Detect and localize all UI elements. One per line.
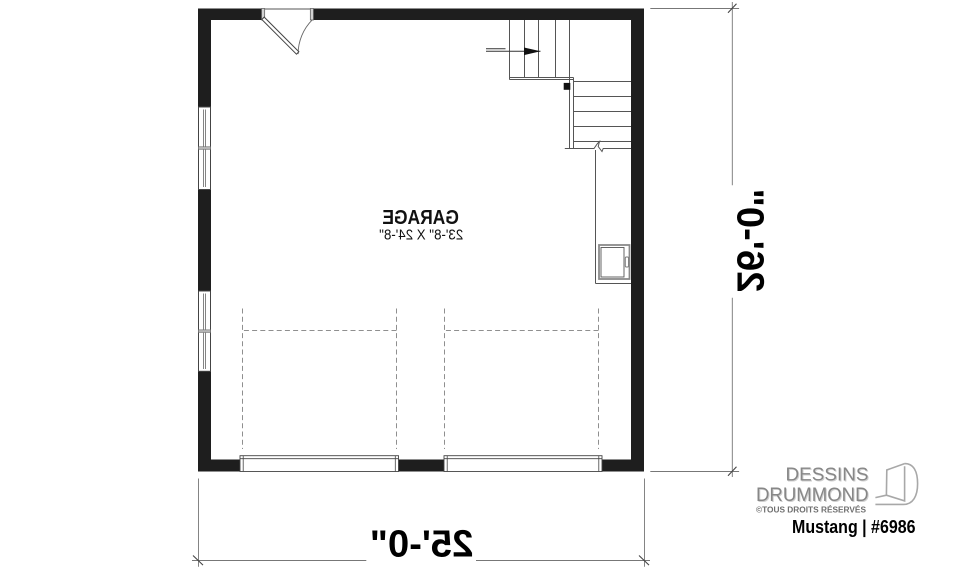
- svg-text:26'-0": 26'-0": [729, 189, 772, 293]
- svg-text:23'-8" X 24'-8": 23'-8" X 24'-8": [379, 227, 463, 244]
- svg-text:Mustang | #6986: Mustang | #6986: [792, 516, 916, 537]
- svg-text:©TOUS DROITS RÉSERVÉS: ©TOUS DROITS RÉSERVÉS: [756, 506, 866, 515]
- svg-text:25'-0": 25'-0": [370, 523, 474, 566]
- svg-text:DRUMMOND: DRUMMOND: [756, 485, 869, 506]
- svg-text:DESSINS: DESSINS: [786, 464, 869, 484]
- svg-text:GARAGE: GARAGE: [382, 207, 459, 229]
